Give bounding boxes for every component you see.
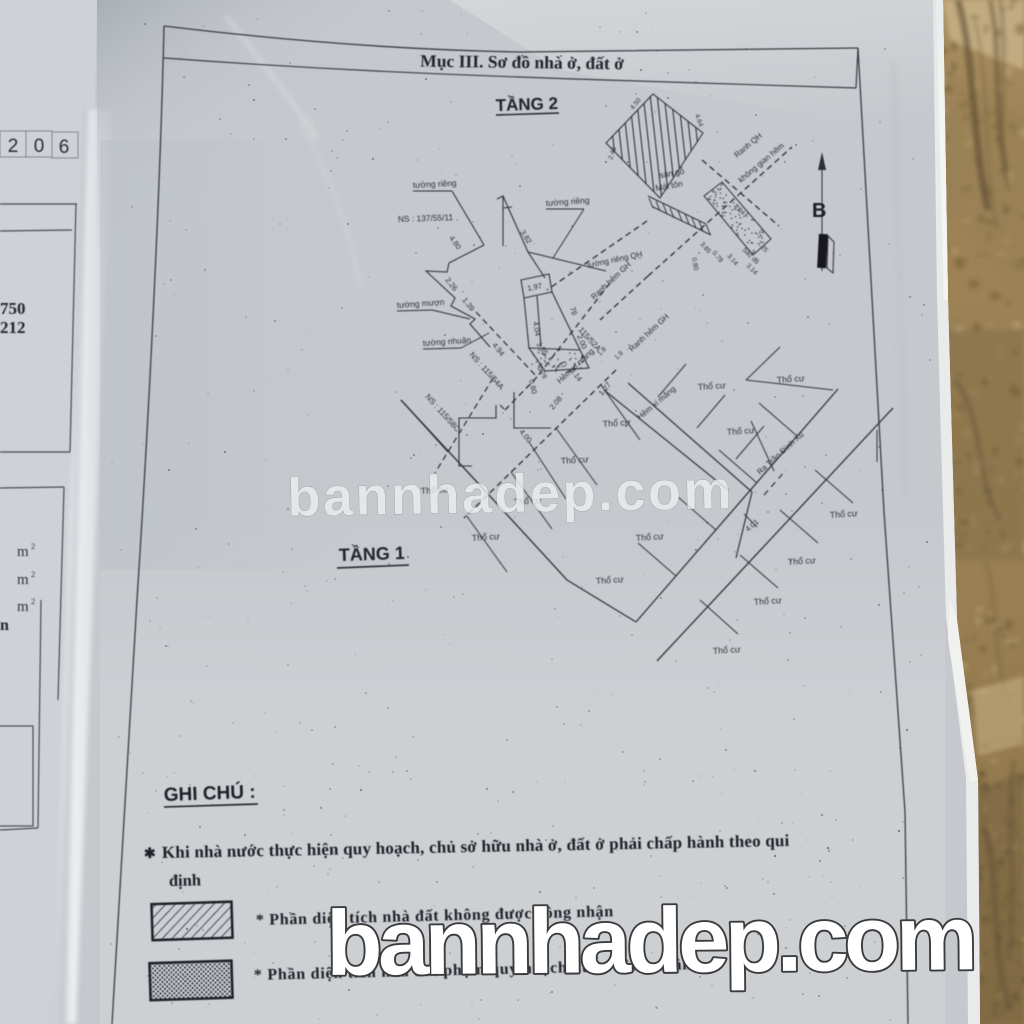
svg-text:TẦNG 2: TẦNG 2 xyxy=(495,94,558,115)
svg-text:✱: ✱ xyxy=(144,847,156,862)
svg-text:B: B xyxy=(812,200,826,222)
svg-text:Thổ cư: Thổ cư xyxy=(471,531,500,543)
svg-text:6: 6 xyxy=(59,137,70,158)
svg-text:NS : 137/55/11: NS : 137/55/11 xyxy=(398,212,454,224)
svg-text:Thổ cư: Thổ cư xyxy=(753,595,782,607)
svg-text:n: n xyxy=(0,617,9,634)
svg-text:định: định xyxy=(169,870,201,890)
svg-text:GHI CHÚ :: GHI CHÚ : xyxy=(163,781,256,806)
svg-text:Thổ cư: Thổ cư xyxy=(829,508,858,520)
svg-text:bannhadep.com: bannhadep.com xyxy=(287,460,735,528)
svg-text:2: 2 xyxy=(8,136,19,157)
svg-text:Thổ cư: Thổ cư xyxy=(635,531,664,543)
svg-text:Thổ cư: Thổ cư xyxy=(697,380,726,392)
svg-text:Thổ cư: Thổ cư xyxy=(602,417,631,429)
svg-text:Thổ cư: Thổ cư xyxy=(712,644,741,656)
svg-text:bannhadep.com: bannhadep.com xyxy=(326,887,974,995)
svg-text:m: m xyxy=(17,544,29,560)
svg-text:Mục III. Sơ đồ nhà ở, đất ở: Mục III. Sơ đồ nhà ở, đất ở xyxy=(420,51,624,74)
svg-text:2: 2 xyxy=(31,542,35,551)
svg-text:212: 212 xyxy=(0,318,26,337)
svg-text:m: m xyxy=(17,572,29,588)
svg-text:m: m xyxy=(17,599,29,615)
svg-text:750: 750 xyxy=(0,299,26,318)
svg-text:TẦNG 1: TẦNG 1 xyxy=(338,542,405,565)
svg-text:0: 0 xyxy=(34,136,45,157)
svg-text:2: 2 xyxy=(31,597,35,606)
svg-text:Thổ cư: Thổ cư xyxy=(776,373,805,385)
svg-text:Thổ cư: Thổ cư xyxy=(726,425,755,437)
svg-text:2: 2 xyxy=(31,570,35,579)
svg-text:Thổ cư: Thổ cư xyxy=(595,574,624,586)
